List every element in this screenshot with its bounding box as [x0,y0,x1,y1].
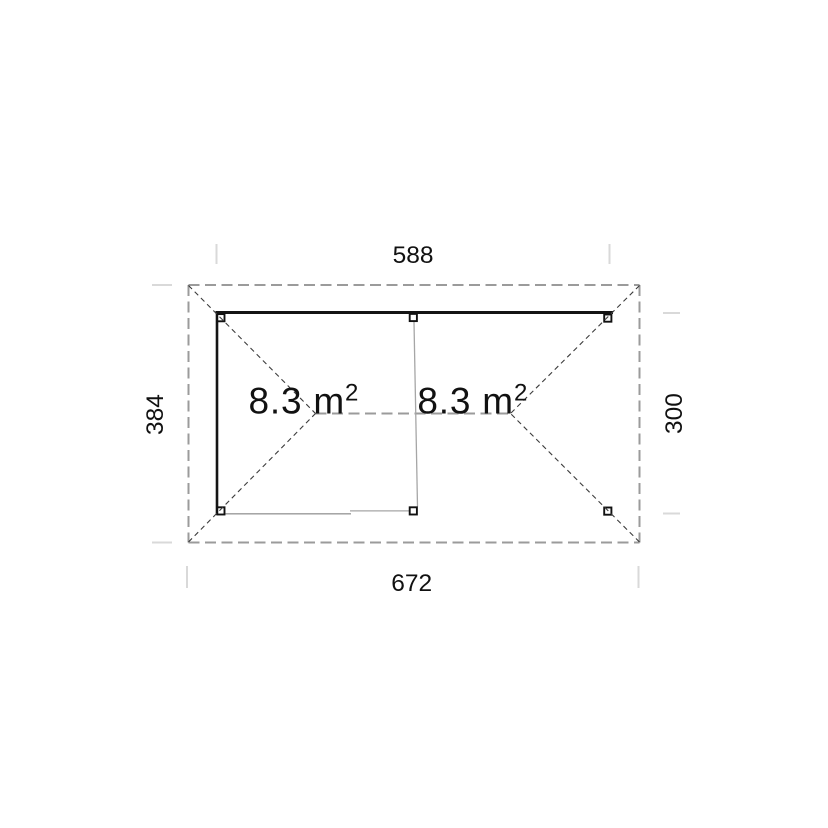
svg-text:384: 384 [142,394,169,435]
svg-text:8.3 m2: 8.3 m2 [249,380,360,422]
svg-text:8.3 m2: 8.3 m2 [417,379,528,421]
svg-text:588: 588 [393,242,434,269]
svg-text:300: 300 [661,393,688,434]
svg-text:672: 672 [391,570,432,597]
